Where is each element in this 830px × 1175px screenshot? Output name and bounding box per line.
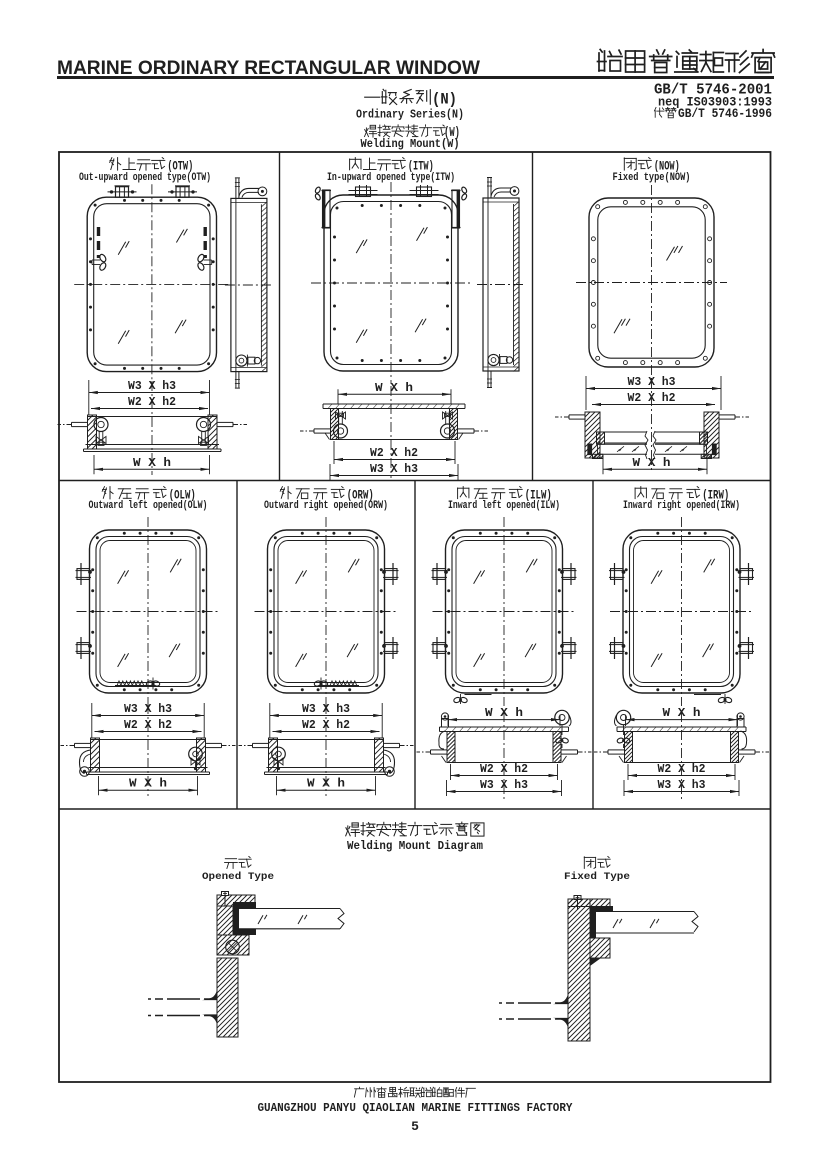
svg-text:W X h: W X h [307,778,345,791]
svg-text:W X h: W X h [133,457,171,470]
svg-text:Fixed type(NOW): Fixed type(NOW) [613,172,691,184]
svg-text:Inward left opened(ILW): Inward left opened(ILW) [448,500,560,512]
svg-text:W2 X h2: W2 X h2 [480,763,528,776]
svg-text:Opened Type: Opened Type [202,871,274,883]
svg-text:Outward right opened(ORW): Outward right opened(ORW) [264,500,388,512]
svg-text:Fixed Type: Fixed Type [564,871,630,883]
svg-text:W3 X h3: W3 X h3 [370,463,418,476]
svg-text:(N): (N) [432,91,457,109]
svg-text:Inward right opened(IRW): Inward right opened(IRW) [623,500,740,512]
svg-text:GUANGZHOU PANYU QIAOLIAN MARIN: GUANGZHOU PANYU QIAOLIAN MARINE FITTINGS… [258,1102,573,1115]
svg-text:W2 X h2: W2 X h2 [658,763,706,776]
svg-text:Welding Mount(W): Welding Mount(W) [361,137,460,151]
svg-text:Ordinary Series(N): Ordinary Series(N) [356,108,464,122]
svg-text:MARINE ORDINARY RECTANGULAR WI: MARINE ORDINARY RECTANGULAR WINDOW [57,57,481,79]
svg-text:GB/T 5746-1996: GB/T 5746-1996 [678,107,772,121]
svg-text:W3 X h3: W3 X h3 [658,779,706,792]
svg-text:W X h: W X h [129,778,167,791]
svg-text:W2 X h2: W2 X h2 [370,447,418,460]
svg-text:Outward left opened(OLW): Outward left opened(OLW) [89,500,208,512]
svg-text:W3 X h3: W3 X h3 [480,779,528,792]
svg-text:Out-upward opened type(OTW): Out-upward opened type(OTW) [79,172,211,184]
svg-text:W X h: W X h [633,457,671,470]
svg-text:W X h: W X h [375,382,413,395]
svg-text:Welding Mount Diagram: Welding Mount Diagram [347,840,483,853]
svg-text:5: 5 [411,1119,419,1134]
